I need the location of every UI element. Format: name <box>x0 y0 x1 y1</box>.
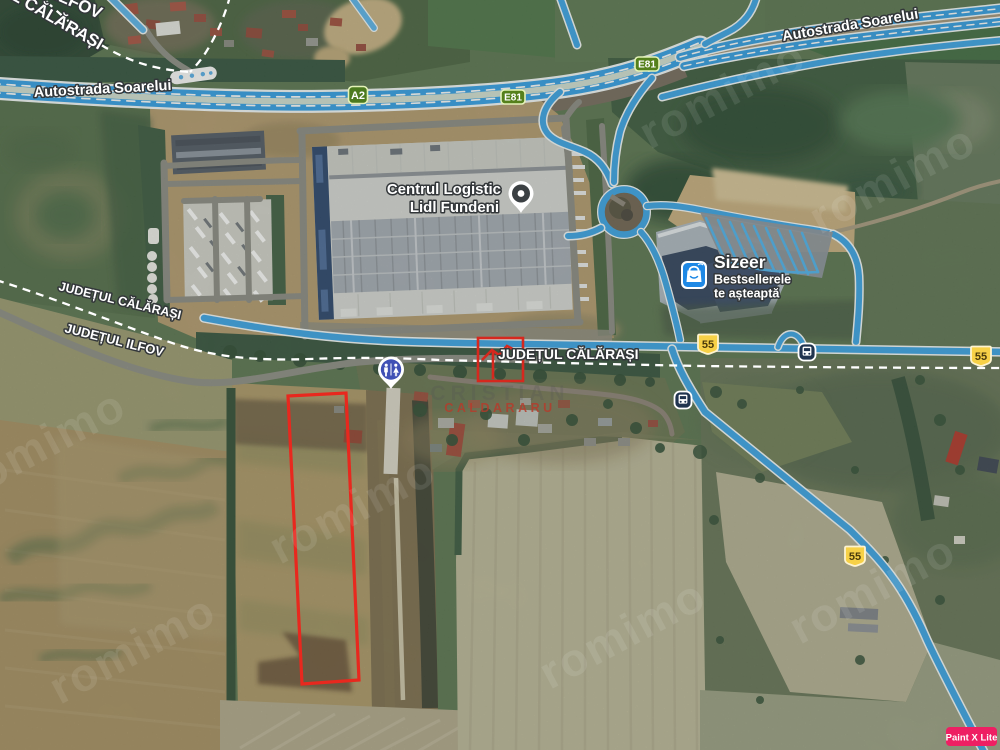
svg-text:JUDEȚUL CĂLĂRAȘI: JUDEȚUL CĂLĂRAȘI <box>498 346 639 362</box>
svg-text:E81: E81 <box>638 60 656 71</box>
svg-text:Bestsellerele: Bestsellerele <box>714 273 791 287</box>
svg-text:te așteaptă: te așteaptă <box>714 287 780 301</box>
svg-text:Paint X Lite: Paint X Lite <box>946 733 998 744</box>
svg-text:Sizeer: Sizeer <box>714 252 766 272</box>
svg-text:Centrul Logistic: Centrul Logistic <box>387 181 501 198</box>
svg-text:55: 55 <box>975 351 987 363</box>
svg-text:A2: A2 <box>351 90 365 102</box>
svg-text:55: 55 <box>702 339 714 351</box>
svg-text:CALDARARU: CALDARARU <box>444 401 555 415</box>
svg-text:E81: E81 <box>504 93 522 104</box>
svg-text:Lidl Fundeni: Lidl Fundeni <box>410 199 499 216</box>
svg-text:55: 55 <box>849 551 861 563</box>
